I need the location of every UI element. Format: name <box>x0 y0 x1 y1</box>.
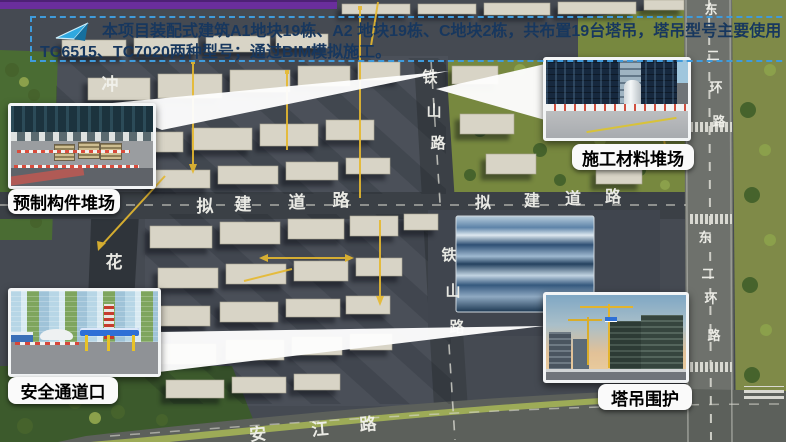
callout-image-crane-enclosure <box>543 292 689 383</box>
scene-crane-mast <box>587 317 589 365</box>
banner-text-line1: 本项目装配式建筑A1地块19栋、A2 地块19栋、C地块2栋，共布置19台塔吊，… <box>102 21 781 42</box>
callout-label-text: 预制构件堆场 <box>13 189 115 214</box>
banner-line1: 本项目装配式建筑A1地块19栋、A2 地块19栋、C地块2栋，共布置19台塔吊，… <box>38 20 786 42</box>
callout-label-crane-enclosure: 塔吊围护 <box>598 384 692 410</box>
road-label: 路 <box>712 114 726 129</box>
road-label: 道 <box>565 189 581 208</box>
road-label: 铁 <box>422 68 437 86</box>
road-label: 江 <box>311 419 330 439</box>
callout-image-precast-yard <box>8 103 156 189</box>
crane-enclosure-scene <box>546 295 686 380</box>
scene-canopy-leg <box>132 335 136 351</box>
callout-label-text: 安全通道口 <box>21 378 106 403</box>
scene-buildings <box>546 60 677 105</box>
paper-plane-arrow-icon <box>54 20 90 42</box>
road-label: 路 <box>333 190 351 210</box>
road-label: 东 <box>698 230 711 245</box>
road-label: 东 <box>704 2 717 17</box>
description-banner: 本项目装配式建筑A1地块19栋、A2 地块19栋、C地块2栋，共布置19台塔吊，… <box>30 16 786 62</box>
road-label: 路 <box>430 134 446 152</box>
scene-crane-jib <box>580 306 633 308</box>
road-label: 道 <box>289 192 306 212</box>
scene-canopy-leg <box>107 335 111 351</box>
scene-crane-banner <box>605 317 618 321</box>
scene-mesh-building <box>641 315 683 369</box>
scene-colonnade <box>11 132 153 142</box>
scene-safety-fence <box>14 165 139 168</box>
scene-ground <box>546 111 688 138</box>
slide-bim-site-plan: 拟 建 道 路 拟 建 道 路 铁 山 路 铁 山 路 东 二 环 路 东 二 … <box>0 0 786 442</box>
material-yard-scene <box>546 60 688 138</box>
callout-label-material-yard: 施工材料堆场 <box>572 144 694 170</box>
road-label: 拟 <box>475 193 491 212</box>
scene-buildings <box>11 106 153 133</box>
road-label: 拟 <box>197 196 214 216</box>
road-label: 花 <box>106 252 123 272</box>
callout-label-precast-yard: 预制构件堆场 <box>8 189 120 214</box>
banner-line2: TC6515、TC7020两种型号；通过BIM模拟施工。 <box>38 42 786 63</box>
callout-label-safety-entrance: 安全通道口 <box>8 377 118 404</box>
scene-building <box>549 332 571 369</box>
road-label: 环 <box>709 80 722 95</box>
scene-fence <box>546 104 688 111</box>
scene-mesh-building <box>610 321 644 370</box>
callout-label-text: 塔吊围护 <box>611 385 679 410</box>
scene-crane-mast <box>608 304 611 369</box>
road-label: 山 <box>426 103 441 120</box>
road-label: 环 <box>704 291 717 306</box>
scene-crane-jib <box>568 319 602 321</box>
scene-ground-fence <box>546 369 686 380</box>
scene-barrier <box>15 342 78 345</box>
road-label: 建 <box>524 192 540 210</box>
road-label: 冲 <box>102 74 119 94</box>
road-label: 路 <box>359 413 379 434</box>
road-label: 二 <box>701 266 714 281</box>
safety-entrance-scene <box>11 291 158 374</box>
scene-canopy-leg <box>85 335 89 351</box>
callout-image-material-yard <box>543 57 691 141</box>
road-label: 建 <box>235 194 252 214</box>
road-label: 路 <box>605 187 622 206</box>
callout-image-safety-entrance <box>8 288 161 377</box>
callout-label-text: 施工材料堆场 <box>582 145 684 170</box>
slide-top-bar <box>0 0 337 9</box>
road-label: 路 <box>449 318 465 336</box>
scene-site-wall <box>11 332 33 342</box>
road-label: 铁 <box>441 246 456 264</box>
scene-silo <box>624 80 641 105</box>
road-label: 山 <box>445 283 460 300</box>
scene-tent <box>40 329 72 340</box>
road-label: 路 <box>707 328 721 343</box>
scene-safety-fence <box>17 150 131 153</box>
road-label: 安 <box>248 423 267 442</box>
banner-text-line2: TC6515、TC7020两种型号；通过BIM模拟施工。 <box>40 44 391 61</box>
precast-yard-scene <box>11 106 153 186</box>
